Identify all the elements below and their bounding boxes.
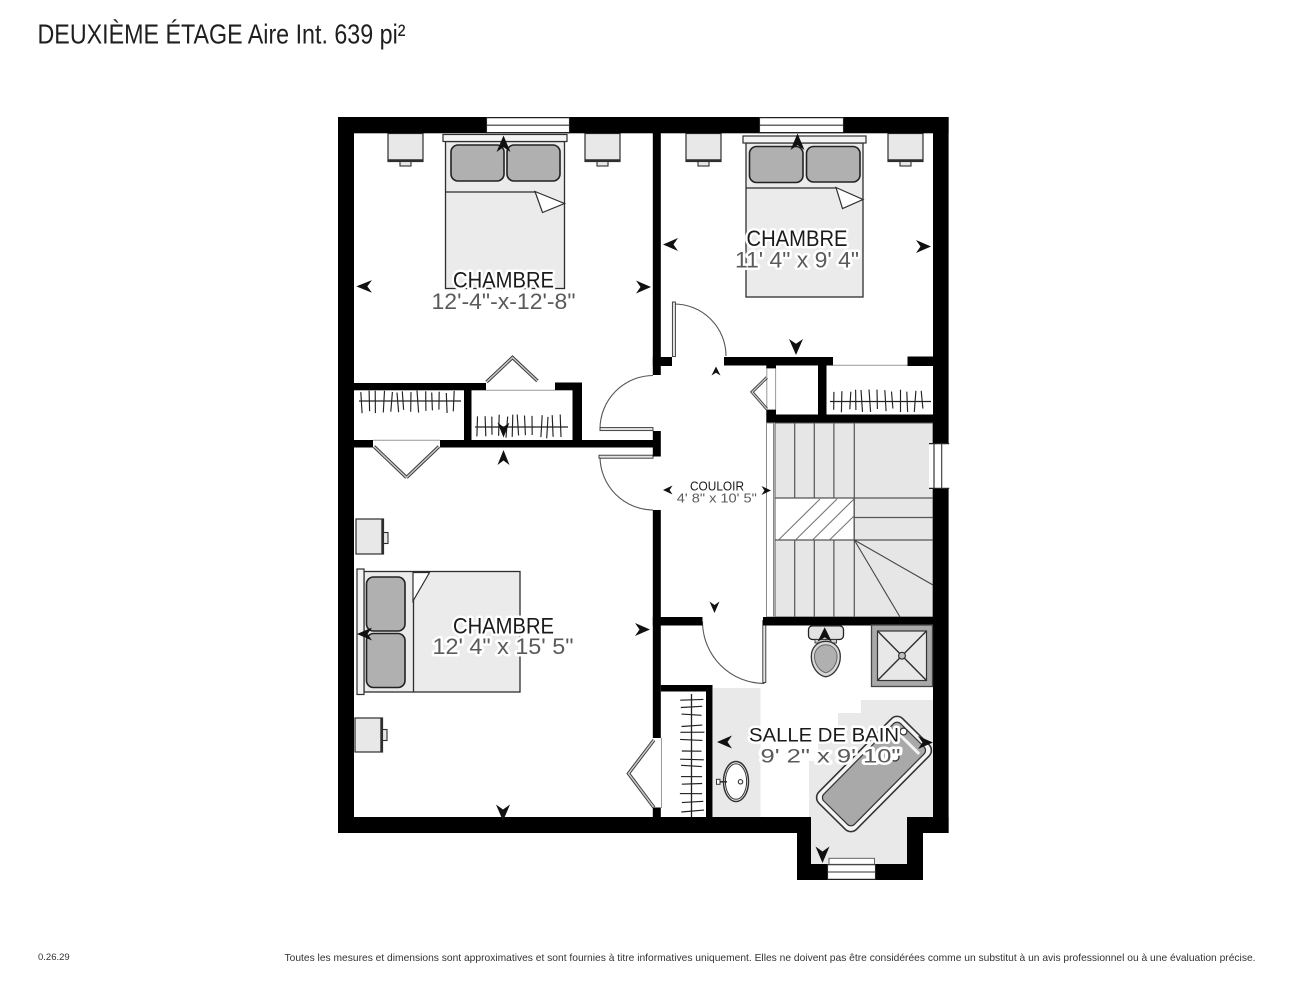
svg-text:12'-4"-x-12'-8": 12'-4"-x-12'-8" [432, 289, 576, 314]
svg-text:12' 4" x 15' 5": 12' 4" x 15' 5" [433, 634, 574, 659]
svg-text:DEUXIÈME ÉTAGE Aire Int. 639 p: DEUXIÈME ÉTAGE Aire Int. 639 pi² [38, 19, 406, 50]
svg-text:SALLE DE BAIN: SALLE DE BAIN [749, 724, 899, 746]
svg-text:Toutes les mesures et dimensio: Toutes les mesures et dimensions sont ap… [285, 952, 1256, 964]
svg-text:4' 8" x 10' 5": 4' 8" x 10' 5" [677, 491, 757, 505]
svg-text:11' 4" x 9' 4": 11' 4" x 9' 4" [735, 248, 859, 273]
svg-text:0.26.29: 0.26.29 [38, 952, 70, 963]
svg-text:9' 2" x 9' 10": 9' 2" x 9' 10" [761, 746, 901, 768]
